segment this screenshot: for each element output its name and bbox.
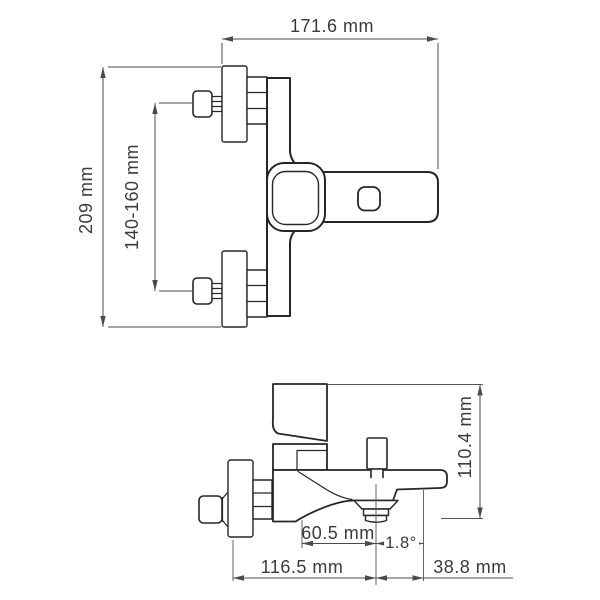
handle-button [358,187,380,211]
dim-side-height: 110.4 mm [455,396,475,479]
wall-plate-side [228,460,253,537]
eccentric-connector-side [223,492,229,527]
wall-plate-bottom [222,251,247,327]
dim-spout-angle: 1.8° [385,534,417,552]
cartridge-body [273,444,327,470]
faucet-technical-drawing: 171.6 mm 209 mm 140-160 mm [0,0,600,600]
drawing-canvas: 171.6 mm 209 mm 140-160 mm [0,0,600,600]
mounting-nut-top [247,77,267,124]
wall-plate-top [222,66,247,142]
dim-wall-reach: 116.5 mm [261,557,344,577]
dim-overall-width: 171.6 mm [290,16,374,36]
mounting-nut-side [253,480,272,519]
eccentric-thread-bottom [212,284,222,299]
eccentric-cap-top [193,91,212,117]
diverter-stem [371,469,383,478]
side-view [199,384,447,537]
eccentric-cap-side [199,496,222,523]
eccentric-thread-top [212,97,222,112]
front-view [193,66,438,327]
dim-mounting-span: 140-160 mm [122,144,142,250]
dim-rear-offset: 38.8 mm [433,557,507,577]
dim-overall-height: 209 mm [76,166,96,234]
dim-outlet-offset: 60.5 mm [301,523,375,543]
eccentric-cap-bottom [193,278,212,304]
diverter-knob [367,438,387,469]
spout-bar [273,470,447,522]
mounting-nut-bottom [247,270,267,317]
lever-handle [273,384,327,441]
